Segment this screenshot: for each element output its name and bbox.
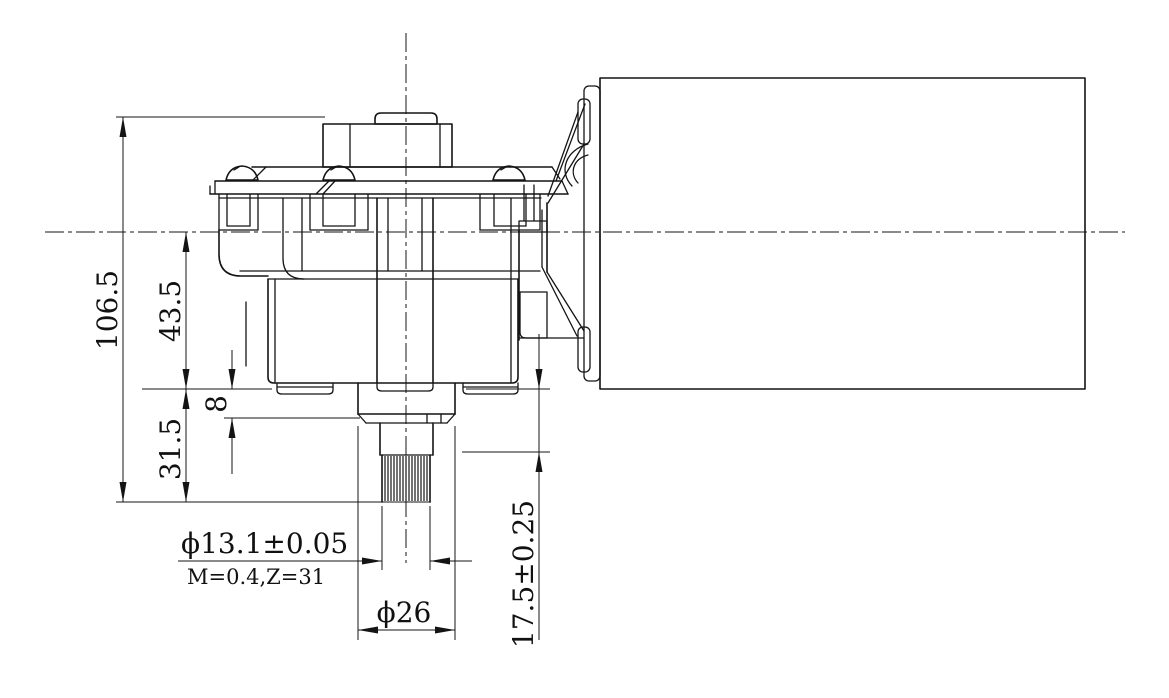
extension-lines — [116, 117, 550, 640]
shaft-boss-bottom — [377, 383, 433, 391]
gear-motor-drawing: 106.5 43.5 31.5 8 17.5±0.25 ϕ13.1±0.05 M… — [0, 0, 1169, 698]
plate-bevel-detail — [323, 181, 335, 194]
collar-chamfer — [447, 414, 455, 423]
gearbox-top — [210, 113, 568, 230]
dim-shaft-shoulder-length: 17.5±0.25 — [507, 334, 543, 648]
plate-bevel-detail — [316, 181, 329, 194]
dim-shaft-shoulder-length-label: 17.5±0.25 — [507, 500, 540, 648]
standoff-boss-left — [219, 194, 258, 230]
mount-lip-left — [277, 383, 333, 394]
standoff-boss-right — [480, 194, 540, 230]
cover-plate-bevel-right — [562, 181, 568, 194]
dim-spline-diameter-label: ϕ13.1±0.05 — [181, 527, 348, 560]
bracket-foot-lower — [520, 292, 547, 338]
gearbox-housing — [219, 198, 541, 394]
dim-boss-height: 8 — [200, 350, 236, 474]
dim-mount-face-to-shaft-end-label: 31.5 — [154, 418, 187, 480]
housing-inner-left-wall — [283, 198, 304, 279]
motor-body — [565, 78, 1085, 389]
motor-can — [600, 78, 1085, 389]
screw-dome-middle — [323, 166, 355, 180]
cover-plate-bevel — [252, 167, 266, 181]
top-boss — [323, 124, 452, 167]
dim-overall-height-label: 106.5 — [91, 270, 124, 350]
lower-housing — [268, 279, 518, 383]
screw-dome-right — [493, 166, 525, 180]
bracket-brace — [556, 104, 585, 181]
flange-bracket — [519, 104, 585, 338]
centerlines — [45, 33, 1125, 563]
dim-center-to-mount-face-label: 43.5 — [154, 280, 187, 342]
bracket-brace — [547, 272, 584, 331]
dim-boss-height-label: 8 — [200, 395, 233, 413]
dim-overall-height: 106.5 — [91, 117, 127, 502]
dim-mount-face-to-shaft-end: 31.5 — [154, 389, 190, 502]
spline-module-teeth-label: M=0.4,Z=31 — [187, 565, 325, 589]
spline-knurl — [382, 455, 430, 502]
dim-collar-diameter: ϕ26 — [358, 596, 455, 634]
dim-collar-diameter-label: ϕ26 — [377, 596, 432, 629]
technical-drawing-page: 106.5 43.5 31.5 8 17.5±0.25 ϕ13.1±0.05 M… — [0, 0, 1169, 698]
housing-outer-left-wall — [219, 230, 268, 276]
motor-end-cap — [584, 86, 600, 381]
standoff-boss-middle — [310, 194, 368, 230]
screw-dome-left — [226, 166, 258, 180]
dim-spline-diameter: ϕ13.1±0.05 M=0.4,Z=31 — [178, 527, 472, 589]
